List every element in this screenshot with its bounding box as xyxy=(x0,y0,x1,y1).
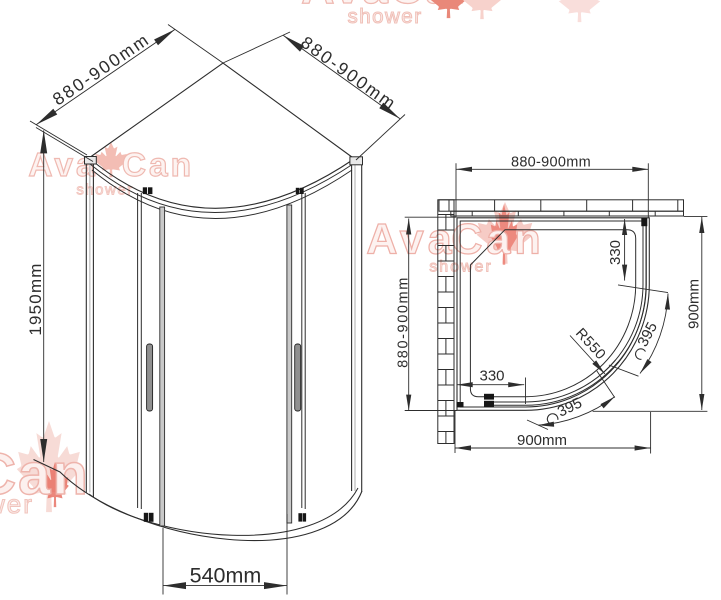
svg-text:Ava: Ava xyxy=(28,147,97,184)
svg-text:900mm: 900mm xyxy=(517,432,567,449)
svg-text:540mm: 540mm xyxy=(190,564,262,588)
svg-text:Can: Can xyxy=(122,147,194,184)
svg-text:1950mm: 1950mm xyxy=(26,262,45,335)
svg-text:Can: Can xyxy=(451,216,544,264)
svg-text:shower: shower xyxy=(76,182,133,199)
svg-text:900mm: 900mm xyxy=(686,279,703,329)
svg-text:shower: shower xyxy=(347,5,422,28)
svg-text:330: 330 xyxy=(607,240,624,265)
svg-text:Ava: Ava xyxy=(366,216,455,264)
svg-text:880-900mm: 880-900mm xyxy=(511,155,591,171)
svg-text:330: 330 xyxy=(479,368,504,385)
svg-text:shower: shower xyxy=(0,489,34,519)
svg-text:880-900mm: 880-900mm xyxy=(396,276,412,368)
